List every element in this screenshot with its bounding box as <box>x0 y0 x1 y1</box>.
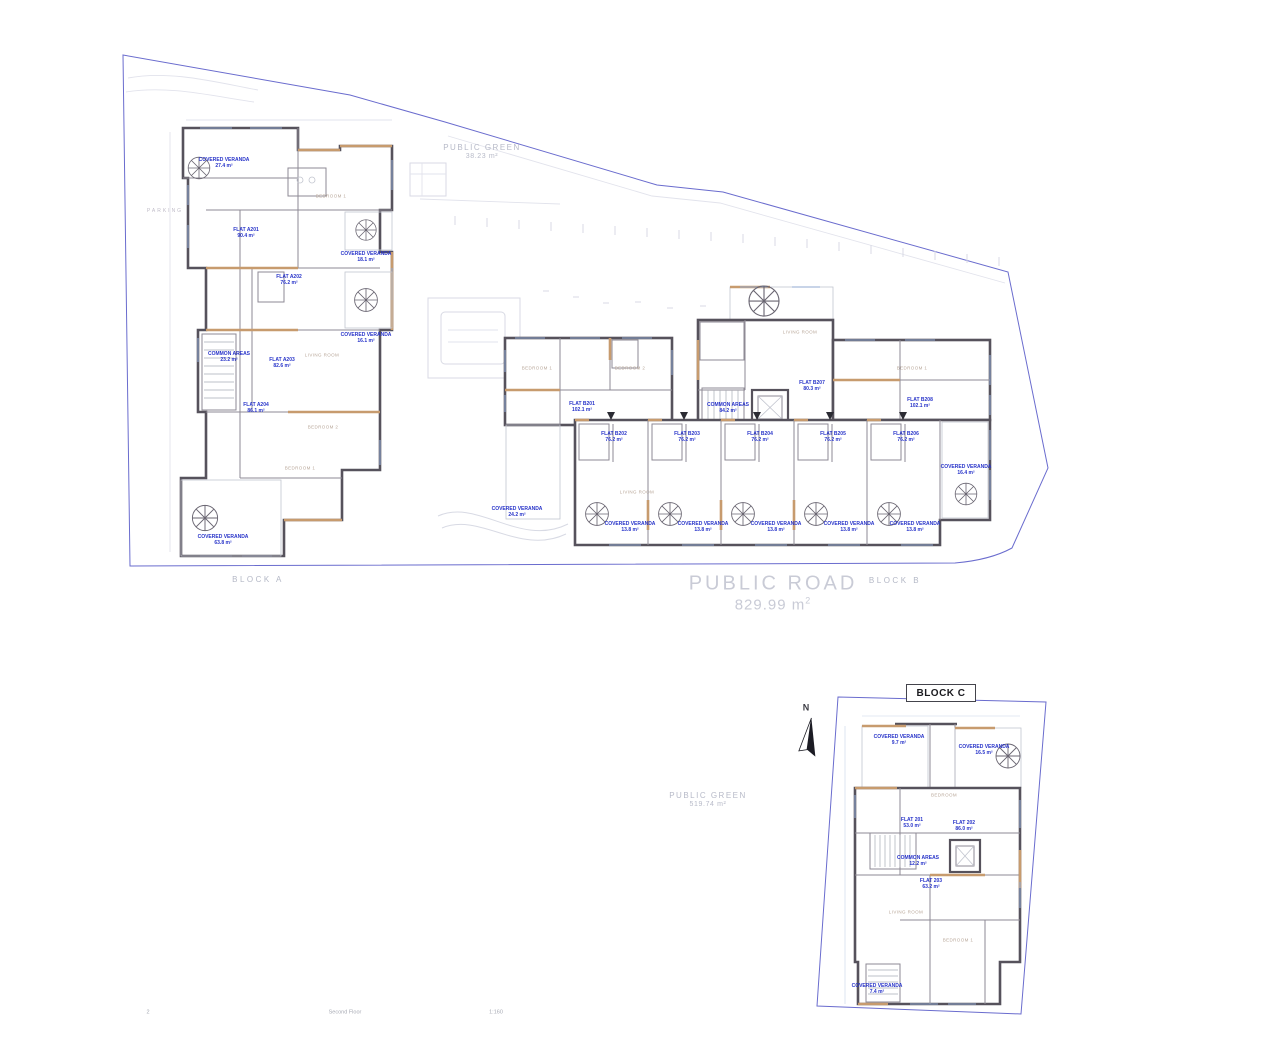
common-areas-label: COMMON AREAS23.2 m² <box>208 351 250 363</box>
veranda-label: COVERED VERANDA16.4 m² <box>941 464 992 476</box>
spiral-staircase-icon <box>192 505 217 530</box>
sheet-title: Second Floor <box>329 1010 362 1017</box>
room-label: BEDROOM <box>931 792 957 797</box>
room-label: LIVING ROOM <box>620 489 654 494</box>
room-label: BEDROOM 1 <box>316 193 347 198</box>
flat-label: FLAT B20476.2 m² <box>747 431 773 443</box>
room-label: LIVING ROOM <box>305 352 339 357</box>
room-label: BEDROOM 1 <box>897 365 928 370</box>
spiral-staircase-icon <box>749 286 779 316</box>
block-a-label: BLOCK A <box>232 575 284 585</box>
veranda-label: COVERED VERANDA24.2 m² <box>492 506 543 518</box>
flat-label: FLAT B20376.2 m² <box>674 431 700 443</box>
veranda-label: COVERED VERANDA13.8 m² <box>890 521 941 533</box>
flat-label: FLAT B20780.3 m² <box>799 380 825 392</box>
north-label: N <box>803 703 810 714</box>
veranda-label: COVERED VERANDA18.1 m² <box>341 251 392 263</box>
sheet-number: 2 <box>146 1010 149 1017</box>
veranda-label: COVERED VERANDA13.8 m² <box>751 521 802 533</box>
common-areas-label: COMMON AREAS84.2 m² <box>707 402 749 414</box>
veranda-label: COVERED VERANDA13.8 m² <box>824 521 875 533</box>
public-road-label: PUBLIC ROAD 829.99 m2 <box>689 572 858 615</box>
block-b-plan <box>505 286 990 545</box>
veranda-label: COVERED VERANDA63.8 m² <box>198 534 249 546</box>
veranda-label: COVERED VERANDA9.7 m² <box>874 734 925 746</box>
room-label: BEDROOM 1 <box>943 937 974 942</box>
flat-label: FLAT B208102.1 m² <box>907 397 933 409</box>
room-label: BEDROOM 2 <box>308 424 339 429</box>
veranda-label: COVERED VERANDA13.8 m² <box>605 521 656 533</box>
flat-label: FLAT B20676.2 m² <box>893 431 919 443</box>
block-c-label: BLOCK C <box>906 684 976 702</box>
flat-label: FLAT 20286.0 m² <box>953 820 975 832</box>
veranda-label: COVERED VERANDA7.4 m² <box>852 983 903 995</box>
flat-label: FLAT A20190.4 m² <box>233 227 259 239</box>
flat-label: FLAT A20486.1 m² <box>243 402 269 414</box>
elevator <box>950 840 980 872</box>
room-label: BEDROOM 1 <box>285 465 316 470</box>
flat-label: FLAT B20276.2 m² <box>601 431 627 443</box>
public-green-bottom-label: PUBLIC GREEN 519.74 m² <box>669 791 747 809</box>
spiral-staircase-icon <box>355 289 378 312</box>
flat-label: FLAT 20363.2 m² <box>920 878 942 890</box>
veranda-label: COVERED VERANDA16.1 m² <box>341 332 392 344</box>
room-label: LIVING ROOM <box>783 329 817 334</box>
spiral-staircase-icon <box>356 220 376 240</box>
public-green-top-label: PUBLIC GREEN 38.23 m² <box>443 143 521 161</box>
room-label: BEDROOM 2 <box>615 365 646 370</box>
veranda-label: COVERED VERANDA13.8 m² <box>678 521 729 533</box>
sheet-scale: 1:160 <box>489 1010 503 1017</box>
floor-plan-sheet: PUBLIC GREEN 38.23 m² PUBLIC ROAD 829.99… <box>0 0 1280 1048</box>
flat-label: FLAT A20276.2 m² <box>276 274 302 286</box>
parking-label: PARKING <box>147 208 183 214</box>
veranda-label: COVERED VERANDA27.4 m² <box>199 157 250 169</box>
room-label: LIVING ROOM <box>889 909 923 914</box>
flat-label: FLAT A20382.6 m² <box>269 357 295 369</box>
room-label: BEDROOM 1 <box>522 365 553 370</box>
block-b-label: BLOCK B <box>869 576 921 586</box>
spiral-staircase-icon <box>955 483 977 505</box>
flat-label: FLAT 20153.0 m² <box>901 817 923 829</box>
common-areas-label: COMMON AREAS12.2 m² <box>897 855 939 867</box>
north-arrow-icon <box>798 717 819 757</box>
flat-label: FLAT B20576.2 m² <box>820 431 846 443</box>
flat-label: FLAT B201102.1 m² <box>569 401 595 413</box>
veranda-label: COVERED VERANDA16.5 m² <box>959 744 1010 756</box>
